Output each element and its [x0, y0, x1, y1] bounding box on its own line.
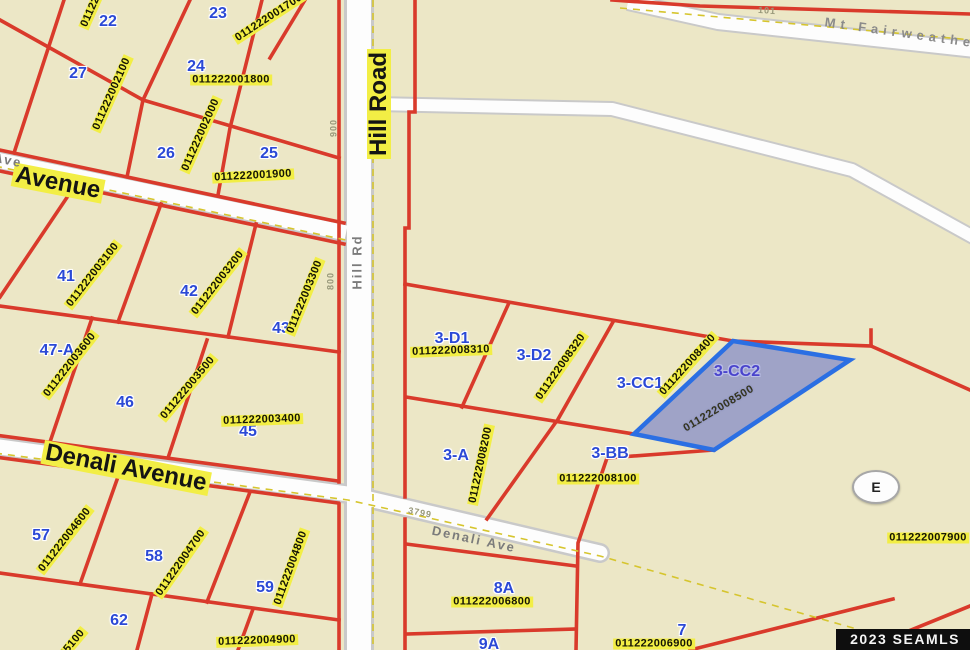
- parcel-number-011222007900: 011222007900: [887, 533, 969, 544]
- lot-label-26: 26: [157, 146, 175, 162]
- lot-label-3-cc2: 3-CC2: [714, 364, 760, 380]
- lot-label-41: 41: [57, 269, 75, 285]
- lot-label-27: 27: [69, 66, 87, 82]
- parcel-number-011222008100: 011222008100: [557, 474, 639, 485]
- lot-label-e: E: [852, 470, 900, 504]
- parcel-map[interactable]: 22232427262541424347-A4645575859623-D13-…: [0, 0, 970, 650]
- road-label-hill-road: Hill Road: [367, 49, 391, 159]
- lot-label-9a: 9A: [479, 637, 499, 650]
- lot-label-3-bb: 3-BB: [591, 446, 628, 462]
- parcel-number-011222001800: 011222001800: [190, 75, 272, 86]
- lot-label-3-d2: 3-D2: [517, 348, 552, 364]
- lot-label-57: 57: [32, 528, 50, 544]
- road-label-900: 900: [330, 119, 339, 137]
- parcel-number-011222006800: 011222006800: [451, 597, 533, 608]
- lot-label-62: 62: [110, 613, 128, 629]
- road-label-hill-rd: Hill Rd: [351, 234, 364, 289]
- lot-label-25: 25: [260, 146, 278, 162]
- lot-label-3-a: 3-A: [443, 448, 469, 464]
- lot-label-58: 58: [145, 549, 163, 565]
- lot-label-3-cc1: 3-CC1: [617, 376, 663, 392]
- lot-label-42: 42: [180, 284, 198, 300]
- lot-label-22: 22: [99, 14, 117, 30]
- road-label-800: 800: [327, 272, 336, 290]
- parcel-number-011222006900: 011222006900: [613, 639, 695, 650]
- lot-label-46: 46: [116, 395, 134, 411]
- lot-label-45: 45: [239, 424, 257, 440]
- road-label-101: 101: [758, 6, 777, 16]
- lot-label-23: 23: [209, 6, 227, 22]
- lot-label-59: 59: [256, 580, 274, 596]
- mls-watermark: 2023 SEAMLS: [836, 629, 970, 650]
